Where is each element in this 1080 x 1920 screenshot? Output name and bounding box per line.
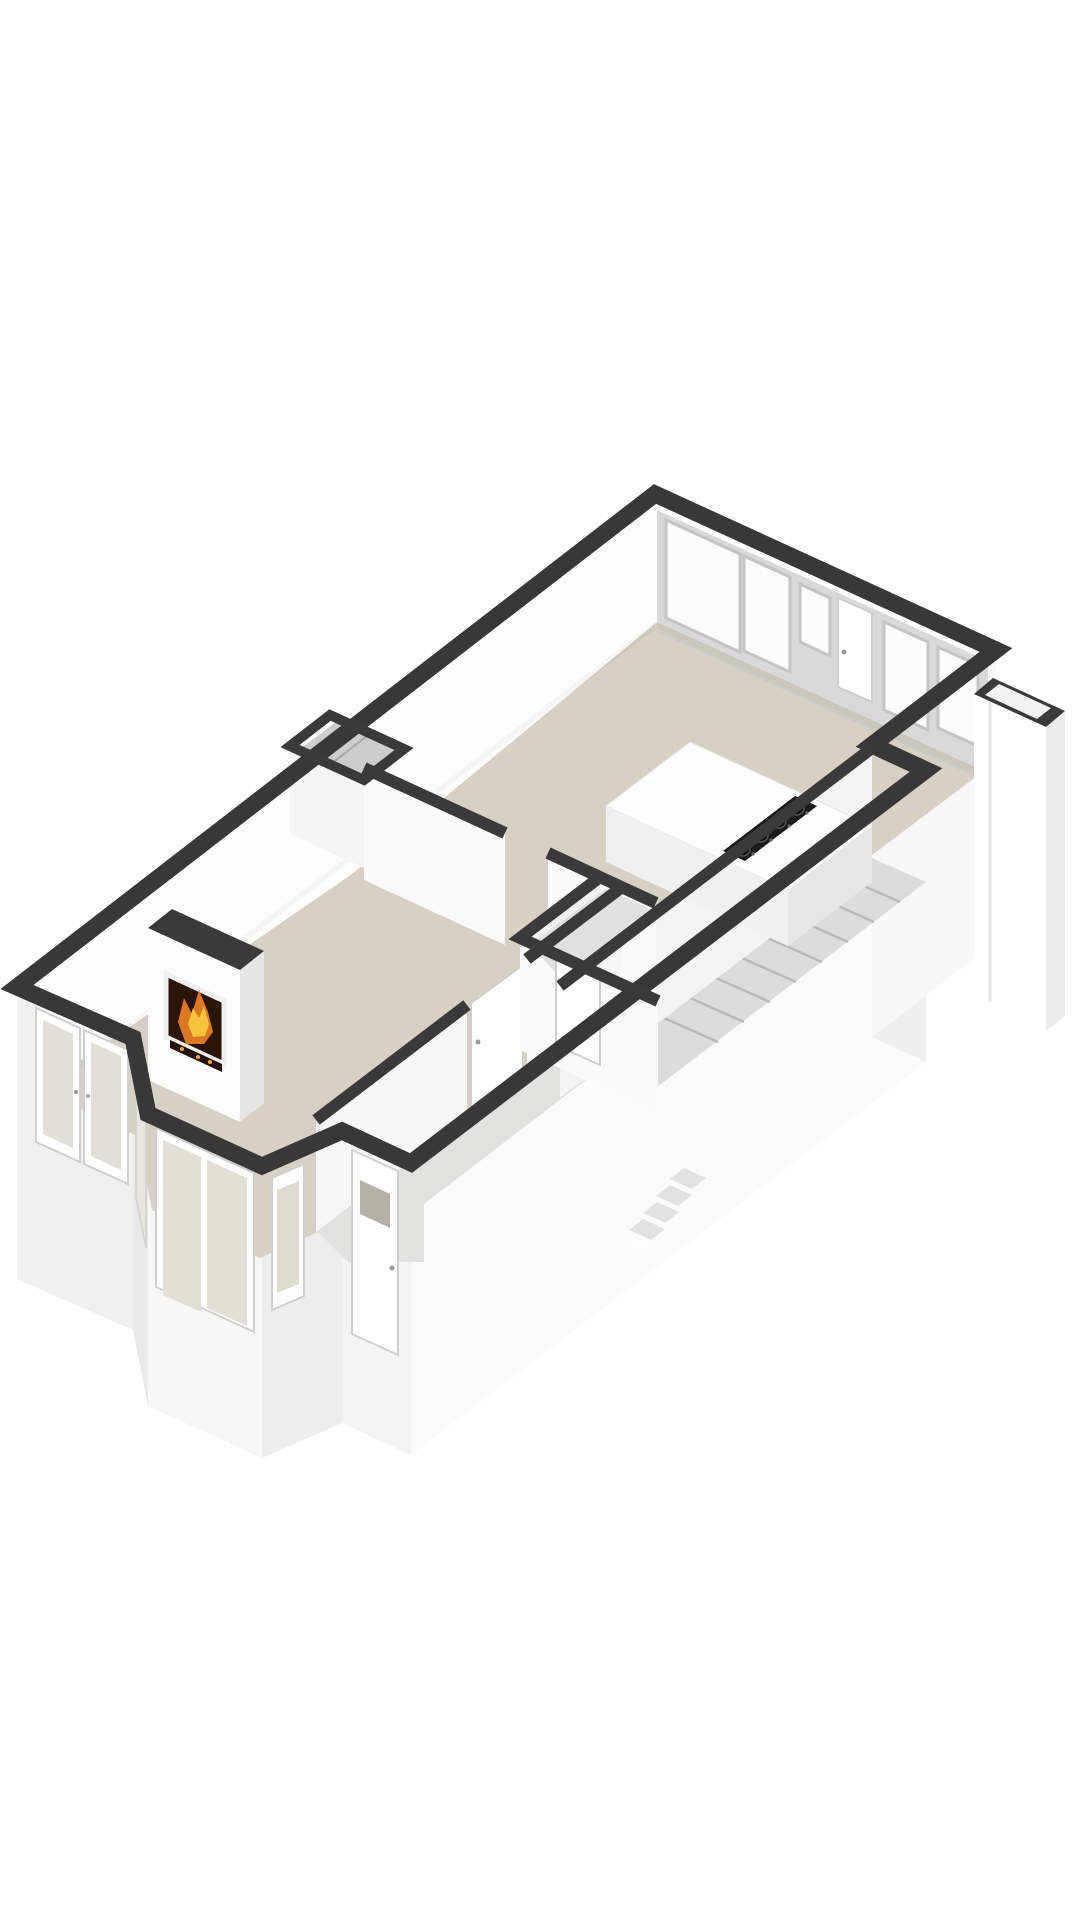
- cooktop-knob-1: [805, 811, 808, 814]
- french-door-right-glass: [91, 1042, 121, 1170]
- bay-front-window-pane-1: [163, 1140, 201, 1312]
- french-door-left-glass: [43, 1020, 73, 1148]
- fireplace-ember-2: [196, 1055, 200, 1059]
- fireplace-ember-1: [180, 1047, 184, 1051]
- fireplace-chimney-side: [240, 951, 264, 1122]
- floorplan-3d-render: [0, 0, 1080, 1920]
- cooktop-knob-4: [751, 852, 754, 855]
- front-door: [352, 1150, 398, 1355]
- ne-window-pane-3: [800, 584, 830, 656]
- french-door-handle-left: [74, 1090, 78, 1094]
- fireplace-ember-3: [208, 1060, 212, 1064]
- kitchen-exterior-door-handle: [842, 650, 847, 655]
- french-door-handle-right: [86, 1094, 90, 1098]
- front-door-handle: [390, 1266, 395, 1271]
- ne-window-pane-2: [744, 556, 790, 672]
- cooktop-knob-3: [769, 838, 772, 841]
- cooktop-knob-2: [787, 824, 790, 827]
- annex-right-face: [1046, 712, 1065, 1031]
- annex-front-face: [974, 694, 1046, 1031]
- bay-front-window-pane-2: [207, 1160, 247, 1326]
- bay-right-window-pane: [277, 1181, 299, 1293]
- floorplan-page: [0, 0, 1080, 1920]
- hall-door-handle: [476, 1040, 481, 1045]
